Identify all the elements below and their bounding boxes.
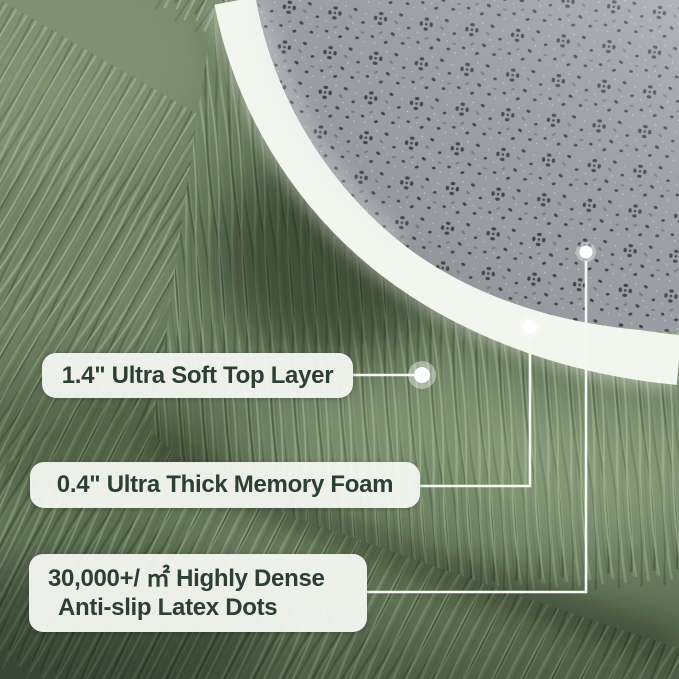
callout-label-memory-foam: 0.4" Ultra Thick Memory Foam [30, 462, 420, 508]
callout-text-latex-dots-line1: 30,000+/ ㎡ Highly Dense [48, 564, 325, 593]
product-image: 1.4" Ultra Soft Top Layer 0.4" Ultra Thi… [0, 0, 679, 679]
callout-dot-top-layer [414, 367, 430, 383]
callout-dot-latex-dots [580, 246, 593, 259]
callout-text-latex-dots-line2: Anti-slip Latex Dots [48, 593, 277, 622]
callout-label-top-layer: 1.4" Ultra Soft Top Layer [42, 353, 353, 398]
callout-dot-memory-foam [523, 320, 537, 334]
callout-text-memory-foam: 0.4" Ultra Thick Memory Foam [57, 471, 393, 499]
callout-label-latex-dots: 30,000+/ ㎡ Highly Dense Anti-slip Latex … [29, 554, 367, 632]
callout-text-top-layer: 1.4" Ultra Soft Top Layer [62, 362, 334, 390]
